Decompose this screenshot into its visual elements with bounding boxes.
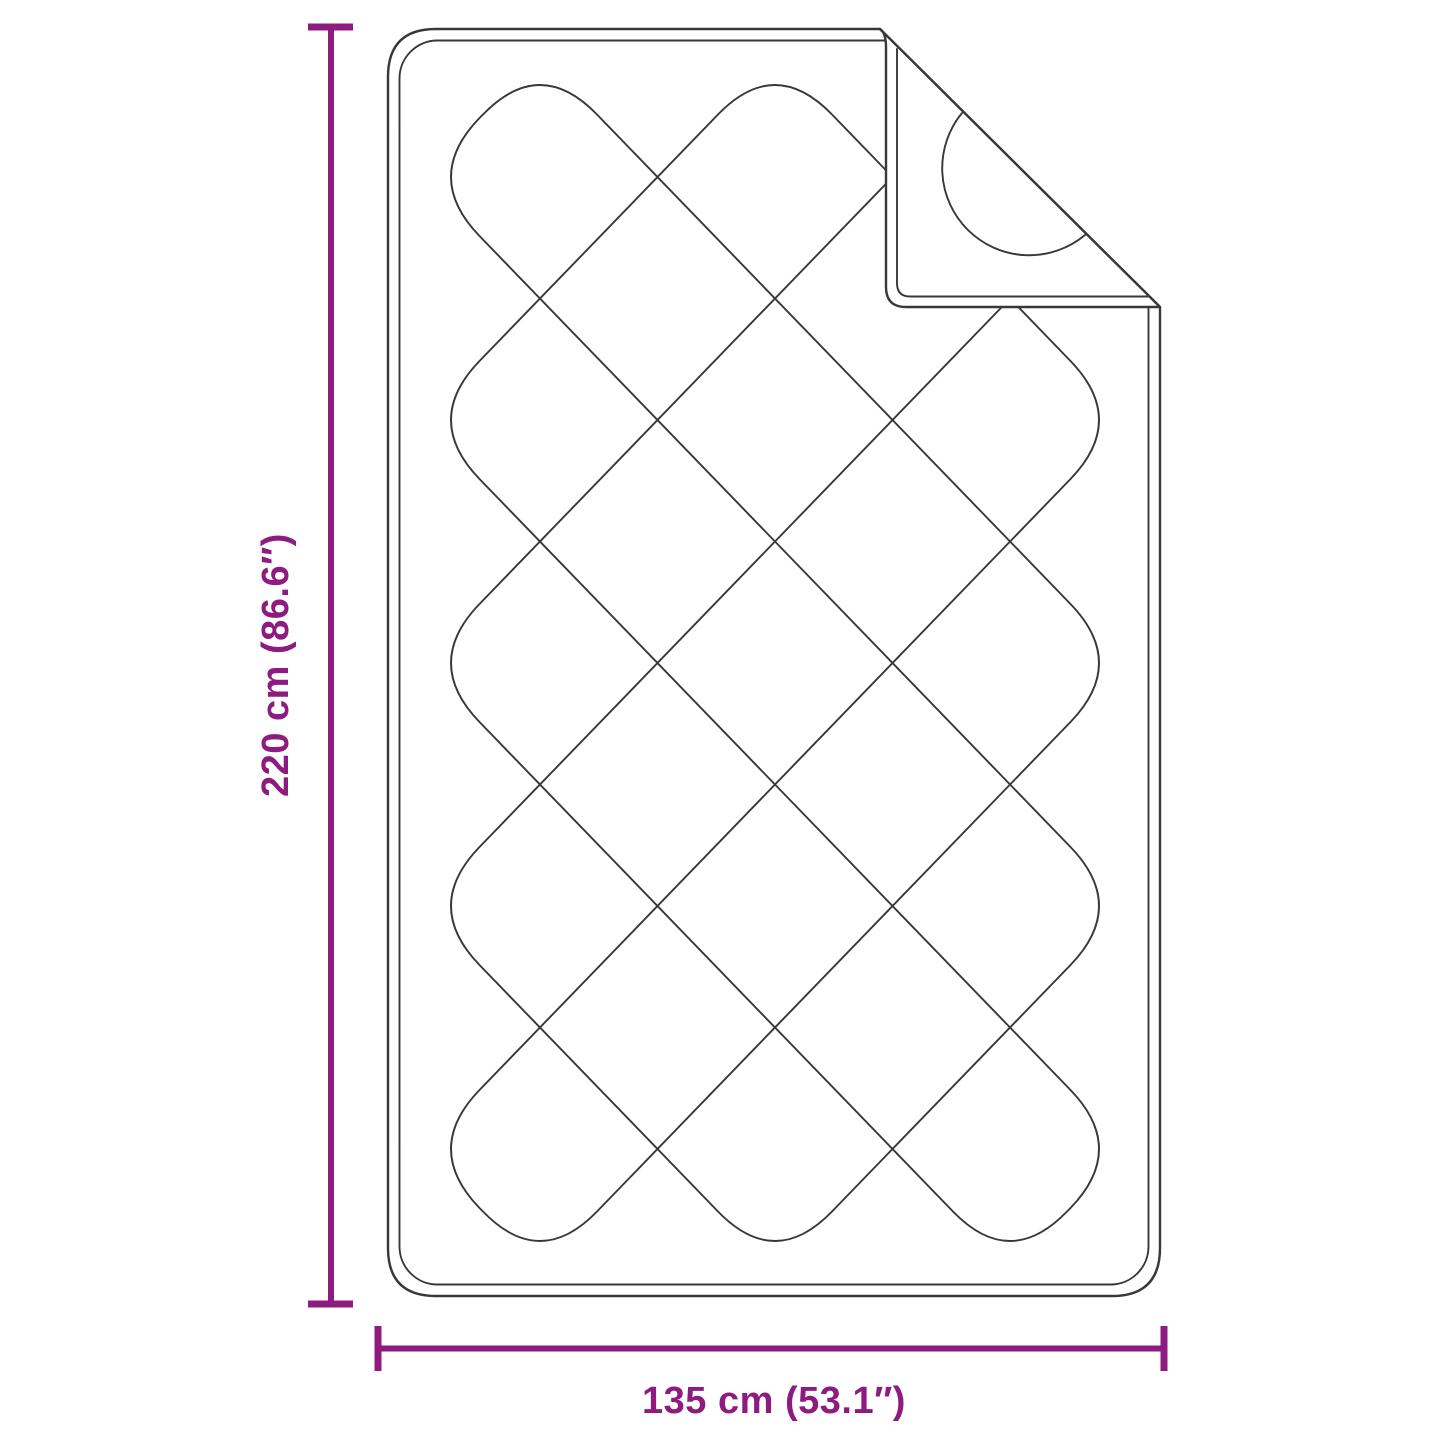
blanket: [388, 29, 1160, 1296]
width-dimension-label: 135 cm (53.1″): [642, 1380, 906, 1422]
width-dimension: 135 cm (53.1″): [378, 1326, 1164, 1422]
folded-corner: [880, 29, 1160, 307]
product-dimension-diagram: 220 cm (86.6″) 135 cm (53.1″): [0, 0, 1445, 1445]
fold-flap: [880, 29, 1160, 307]
height-dimension-label: 220 cm (86.6″): [255, 533, 297, 797]
height-dimension: 220 cm (86.6″): [255, 27, 353, 1304]
diagram-canvas: 220 cm (86.6″) 135 cm (53.1″): [0, 0, 1445, 1445]
